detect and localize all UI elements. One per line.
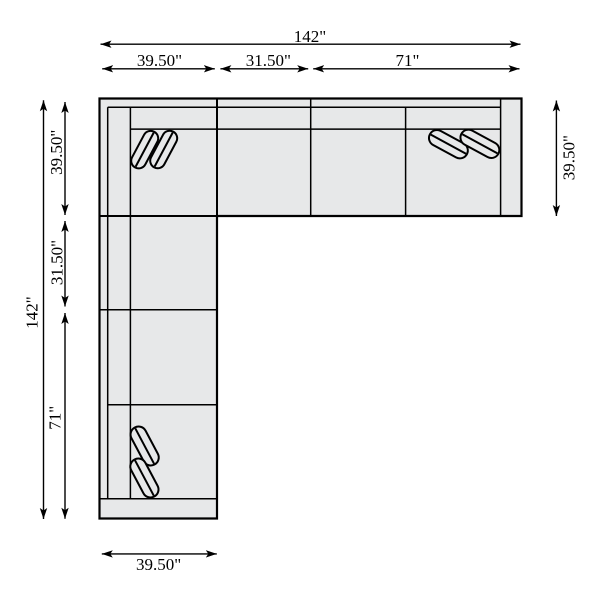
svg-text:71": 71"	[45, 406, 64, 430]
svg-text:142": 142"	[294, 27, 326, 46]
svg-text:71": 71"	[396, 51, 420, 70]
svg-text:31.50": 31.50"	[246, 51, 291, 70]
svg-text:39.50": 39.50"	[559, 135, 578, 180]
svg-text:39.50": 39.50"	[137, 51, 182, 70]
svg-text:31.50": 31.50"	[48, 240, 67, 285]
svg-text:142": 142"	[23, 296, 42, 328]
svg-text:39.50": 39.50"	[47, 130, 66, 175]
svg-text:39.50": 39.50"	[136, 555, 181, 574]
